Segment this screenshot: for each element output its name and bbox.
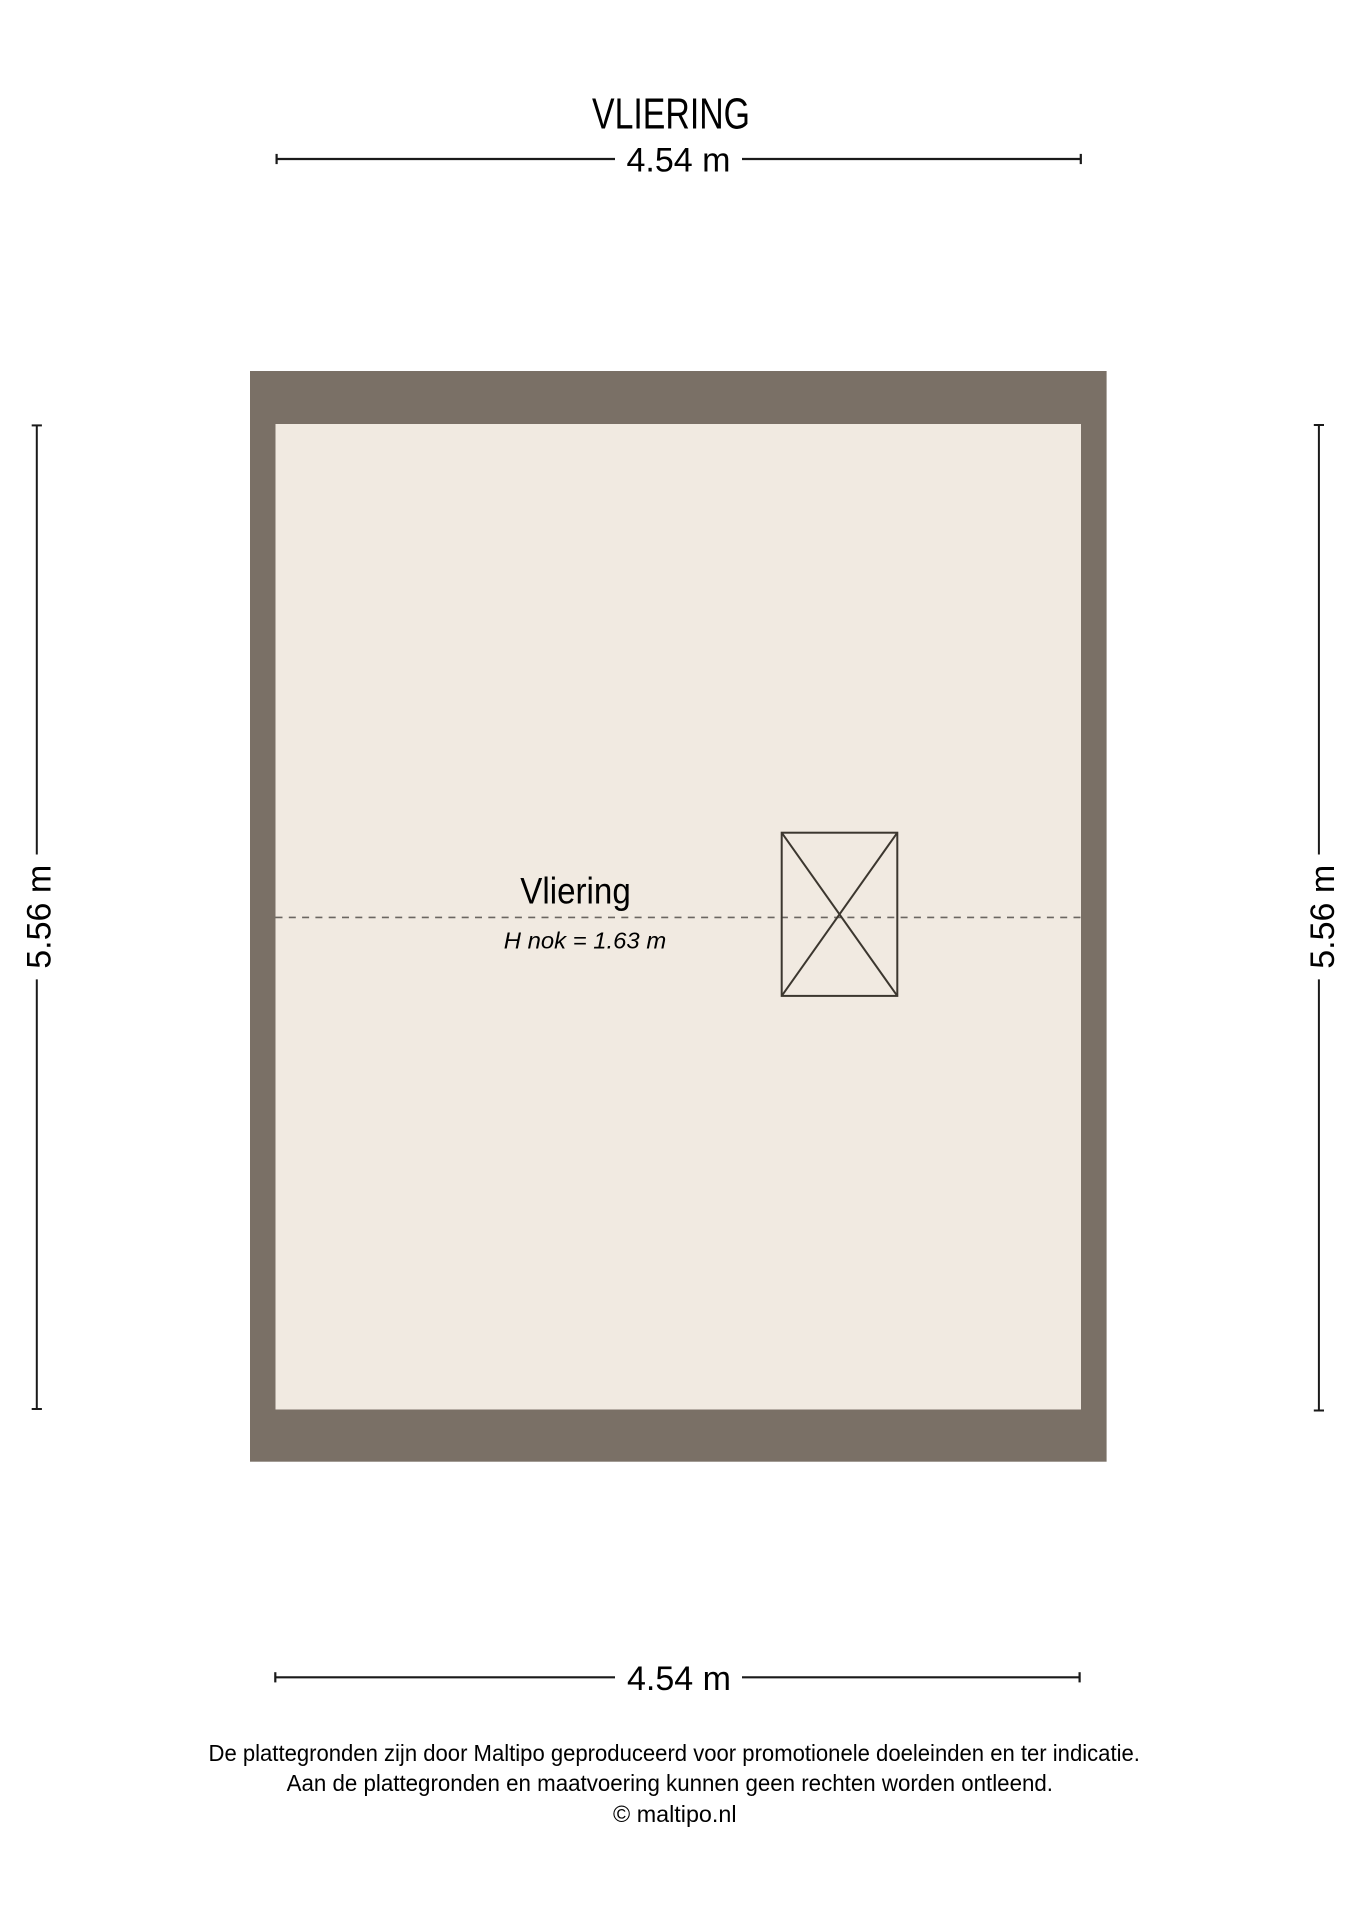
svg-text:Vliering: Vliering <box>520 870 631 911</box>
svg-text:5.56 m: 5.56 m <box>21 865 59 969</box>
svg-text:5.56 m: 5.56 m <box>1304 865 1342 969</box>
svg-text:© maltipo.nl: © maltipo.nl <box>613 1801 737 1827</box>
svg-text:VLIERING: VLIERING <box>592 89 750 138</box>
svg-text:Aan de plattegronden en maatvo: Aan de plattegronden en maatvoering kunn… <box>287 1770 1053 1796</box>
svg-text:4.54 m: 4.54 m <box>627 142 731 180</box>
svg-text:H nok = 1.63 m: H nok = 1.63 m <box>504 927 666 953</box>
svg-text:De plattegronden zijn door Mal: De plattegronden zijn door Maltipo gepro… <box>209 1740 1140 1766</box>
svg-text:4.54 m: 4.54 m <box>627 1660 731 1698</box>
